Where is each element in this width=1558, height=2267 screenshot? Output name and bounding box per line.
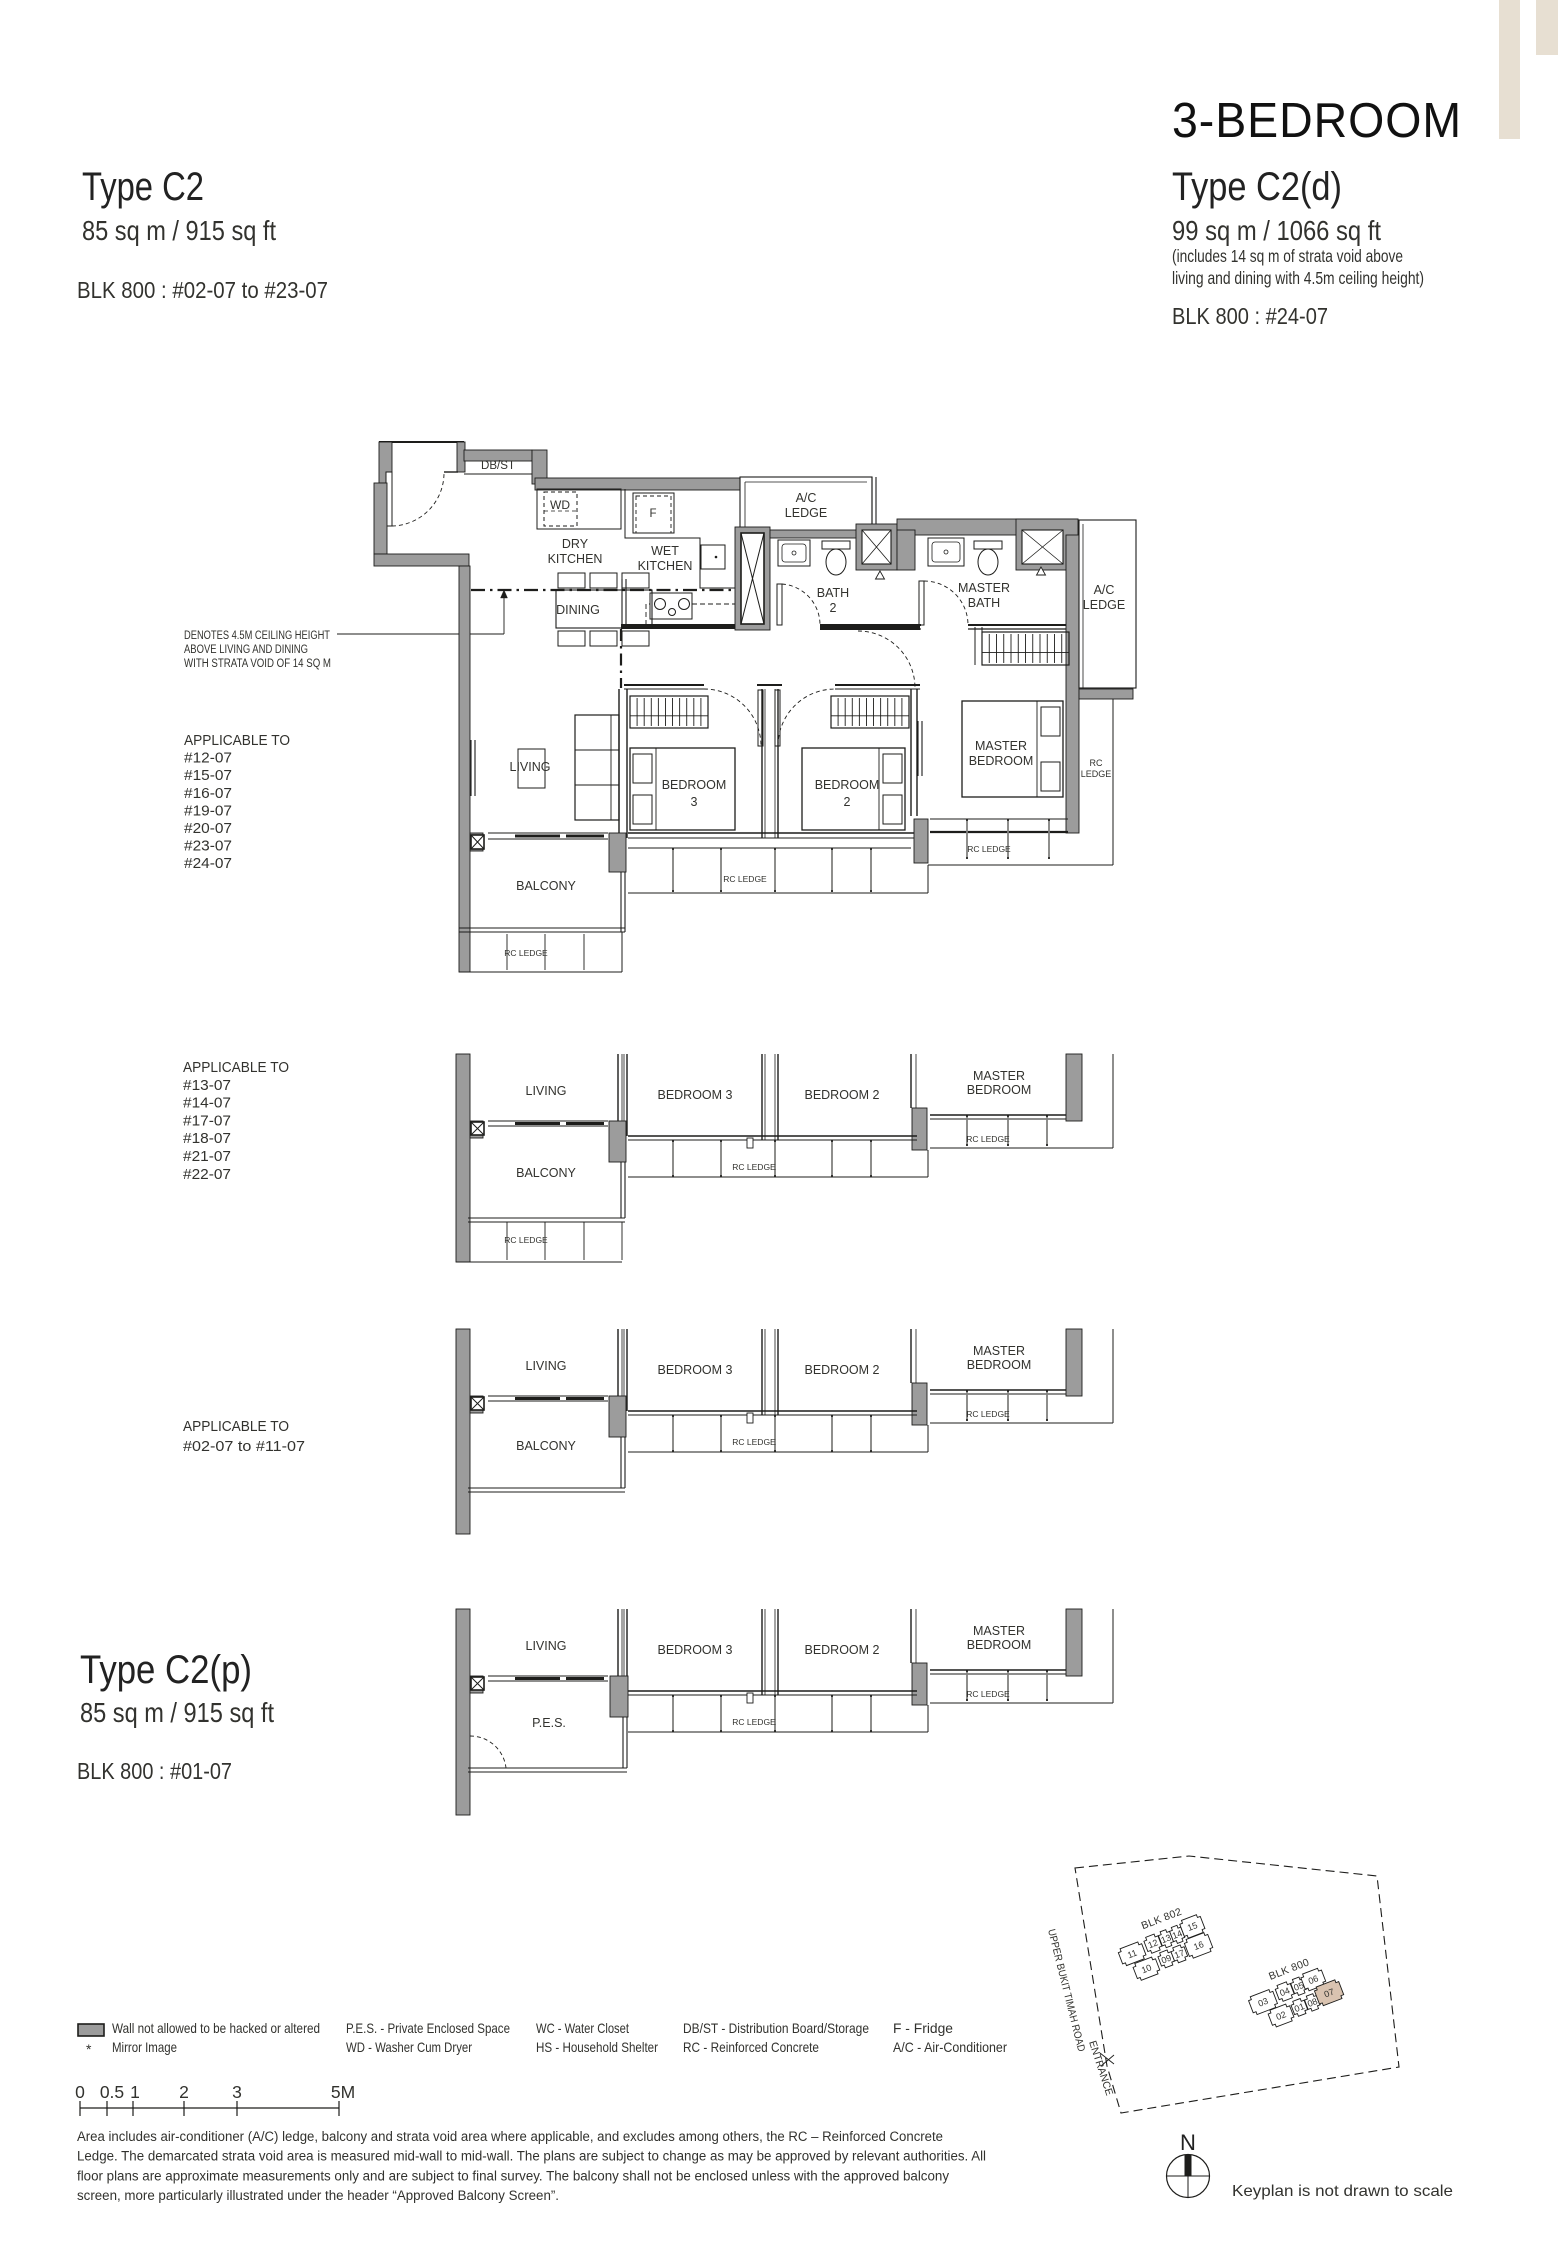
svg-text:N: N [1180, 2130, 1196, 2155]
svg-text:A/C: A/C [1094, 583, 1115, 597]
svg-text:MASTER: MASTER [973, 1069, 1025, 1083]
svg-text:RC: RC [1090, 758, 1103, 768]
svg-text:2: 2 [830, 601, 837, 615]
svg-text:(includes 14 sq m of strata vo: (includes 14 sq m of strata void above [1172, 246, 1403, 266]
svg-text:Keyplan is not drawn to scale: Keyplan is not drawn to scale [1232, 2183, 1453, 2200]
svg-text:living and dining with 4.5m ce: living and dining with 4.5m ceiling heig… [1172, 268, 1424, 288]
svg-text:#16-07: #16-07 [184, 786, 232, 802]
svg-text:MASTER: MASTER [973, 1624, 1025, 1638]
svg-text:BATH: BATH [968, 596, 1000, 610]
svg-text:BEDROOM 2: BEDROOM 2 [804, 1088, 879, 1102]
svg-text:RC LEDGE: RC LEDGE [732, 1717, 776, 1727]
svg-text:RC LEDGE: RC LEDGE [966, 1134, 1010, 1144]
svg-text:RC LEDGE: RC LEDGE [967, 844, 1011, 854]
svg-text:BEDROOM: BEDROOM [967, 1083, 1032, 1097]
svg-text:BEDROOM 2: BEDROOM 2 [804, 1363, 879, 1377]
svg-text:DENOTES 4.5M CEILING HEIGHT: DENOTES 4.5M CEILING HEIGHT [184, 630, 330, 642]
svg-text:RC LEDGE: RC LEDGE [732, 1437, 776, 1447]
svg-text:screen, more particularly illu: screen, more particularly illustrated un… [77, 2188, 559, 2203]
svg-text:BLK 800 : #01-07: BLK 800 : #01-07 [77, 1758, 232, 1784]
svg-text:Type C2(p): Type C2(p) [80, 1648, 252, 1692]
svg-text:RC LEDGE: RC LEDGE [504, 1235, 548, 1245]
svg-text:RC LEDGE: RC LEDGE [966, 1689, 1010, 1699]
svg-text:DINING: DINING [556, 603, 600, 617]
svg-text:3: 3 [691, 795, 698, 809]
svg-text:#18-07: #18-07 [183, 1131, 231, 1147]
svg-text:85 sq m / 915 sq ft: 85 sq m / 915 sq ft [82, 215, 276, 246]
svg-text:A/C - Air-Conditioner: A/C - Air-Conditioner [893, 2039, 1007, 2055]
svg-text:RC LEDGE: RC LEDGE [504, 948, 548, 958]
svg-text:WC - Water Closet: WC - Water Closet [536, 2020, 629, 2036]
svg-text:LEDGE: LEDGE [785, 506, 827, 520]
svg-text:BEDROOM: BEDROOM [967, 1638, 1032, 1652]
svg-text:5M: 5M [331, 2082, 355, 2102]
svg-text:KITCHEN: KITCHEN [548, 552, 603, 566]
svg-text:P.E.S. - Private Enclosed Spac: P.E.S. - Private Enclosed Space [346, 2020, 510, 2036]
svg-text:BEDROOM: BEDROOM [815, 778, 880, 792]
svg-text:99 sq m / 1066 sq ft: 99 sq m / 1066 sq ft [1172, 215, 1381, 246]
svg-text:BALCONY: BALCONY [516, 1166, 576, 1180]
svg-text:LIVING: LIVING [510, 760, 551, 774]
svg-text:APPLICABLE TO: APPLICABLE TO [183, 1060, 289, 1076]
svg-text:#13-07: #13-07 [183, 1078, 231, 1094]
svg-text:2: 2 [179, 2082, 189, 2102]
svg-text:DRY: DRY [562, 537, 589, 551]
svg-text:F: F [649, 508, 656, 520]
svg-text:MASTER: MASTER [973, 1344, 1025, 1358]
svg-text:0: 0 [75, 2082, 85, 2102]
svg-text:floor plans are approximate me: floor plans are approximate measurements… [77, 2168, 949, 2183]
svg-text:WET: WET [651, 544, 679, 558]
svg-text:#12-07: #12-07 [184, 751, 232, 767]
svg-text:DB/ST - Distribution Board/Sto: DB/ST - Distribution Board/Storage [683, 2020, 869, 2036]
svg-text:Mirror Image: Mirror Image [112, 2039, 177, 2055]
svg-text:#23-07: #23-07 [184, 839, 232, 855]
svg-text:#15-07: #15-07 [184, 768, 232, 784]
svg-text:BEDROOM: BEDROOM [969, 754, 1034, 768]
svg-text:P.E.S.: P.E.S. [532, 1716, 566, 1730]
svg-text:BEDROOM 3: BEDROOM 3 [657, 1363, 732, 1377]
svg-text:#21-07: #21-07 [183, 1149, 231, 1165]
svg-text:LIVING: LIVING [526, 1639, 567, 1653]
svg-text:Area includes air-conditioner: Area includes air-conditioner (A/C) ledg… [77, 2129, 943, 2144]
svg-text:Type C2(d): Type C2(d) [1172, 165, 1342, 209]
svg-text:BEDROOM: BEDROOM [967, 1358, 1032, 1372]
svg-text:MASTER: MASTER [958, 581, 1010, 595]
svg-text:A/C: A/C [796, 491, 817, 505]
svg-text:F - Fridge: F - Fridge [893, 2020, 953, 2036]
svg-text:BLK 800 : #02-07 to #23-07: BLK 800 : #02-07 to #23-07 [77, 277, 328, 303]
svg-text:BEDROOM: BEDROOM [662, 778, 727, 792]
svg-text:KITCHEN: KITCHEN [638, 559, 693, 573]
svg-text:#22-07: #22-07 [183, 1167, 231, 1183]
svg-text:RC - Reinforced Concrete: RC - Reinforced Concrete [683, 2039, 819, 2055]
svg-text:#20-07: #20-07 [184, 821, 232, 837]
svg-text:#02-07 to #11-07: #02-07 to #11-07 [183, 1439, 305, 1455]
svg-text:*: * [86, 2041, 92, 2057]
svg-text:BATH: BATH [817, 586, 849, 600]
svg-text:LIVING: LIVING [526, 1084, 567, 1098]
svg-text:ABOVE LIVING AND DINING: ABOVE LIVING AND DINING [184, 644, 308, 656]
svg-text:LEDGE: LEDGE [1081, 769, 1112, 779]
svg-text:RC LEDGE: RC LEDGE [723, 874, 767, 884]
svg-text:Ledge. The demarcated strata v: Ledge. The demarcated strata void area i… [77, 2149, 986, 2164]
svg-text:BALCONY: BALCONY [516, 879, 576, 893]
svg-text:RC LEDGE: RC LEDGE [732, 1162, 776, 1172]
svg-text:BEDROOM 3: BEDROOM 3 [657, 1643, 732, 1657]
svg-text:3-BEDROOM: 3-BEDROOM [1172, 94, 1462, 148]
svg-text:WITH STRATA VOID OF 14 SQ M: WITH STRATA VOID OF 14 SQ M [184, 658, 331, 670]
svg-text:DB/ST: DB/ST [481, 460, 515, 472]
svg-text:BLK 800 : #24-07: BLK 800 : #24-07 [1172, 303, 1328, 329]
svg-text:MASTER: MASTER [975, 739, 1027, 753]
svg-text:2: 2 [844, 795, 851, 809]
svg-text:APPLICABLE TO: APPLICABLE TO [184, 733, 290, 749]
svg-text:Type C2: Type C2 [82, 165, 204, 209]
svg-text:0.5: 0.5 [100, 2082, 124, 2102]
svg-text:LEDGE: LEDGE [1083, 598, 1125, 612]
svg-text:HS - Household Shelter: HS - Household Shelter [536, 2039, 658, 2055]
svg-text:#14-07: #14-07 [183, 1096, 231, 1112]
svg-text:#24-07: #24-07 [184, 856, 232, 872]
svg-text:3: 3 [232, 2082, 242, 2102]
svg-text:#17-07: #17-07 [183, 1113, 231, 1129]
svg-text:WD: WD [550, 500, 570, 512]
svg-text:Wall not allowed to be hacked: Wall not allowed to be hacked or altered [112, 2020, 320, 2036]
svg-text:BEDROOM 3: BEDROOM 3 [657, 1088, 732, 1102]
svg-text:BALCONY: BALCONY [516, 1439, 576, 1453]
svg-text:APPLICABLE TO: APPLICABLE TO [183, 1419, 289, 1435]
svg-text:1: 1 [130, 2082, 140, 2102]
svg-text:BEDROOM 2: BEDROOM 2 [804, 1643, 879, 1657]
svg-text:85 sq m / 915 sq ft: 85 sq m / 915 sq ft [80, 1697, 274, 1728]
svg-text:#19-07: #19-07 [184, 803, 232, 819]
svg-text:RC LEDGE: RC LEDGE [966, 1409, 1010, 1419]
svg-text:LIVING: LIVING [526, 1359, 567, 1373]
svg-text:WD - Washer Cum Dryer: WD - Washer Cum Dryer [346, 2039, 472, 2055]
